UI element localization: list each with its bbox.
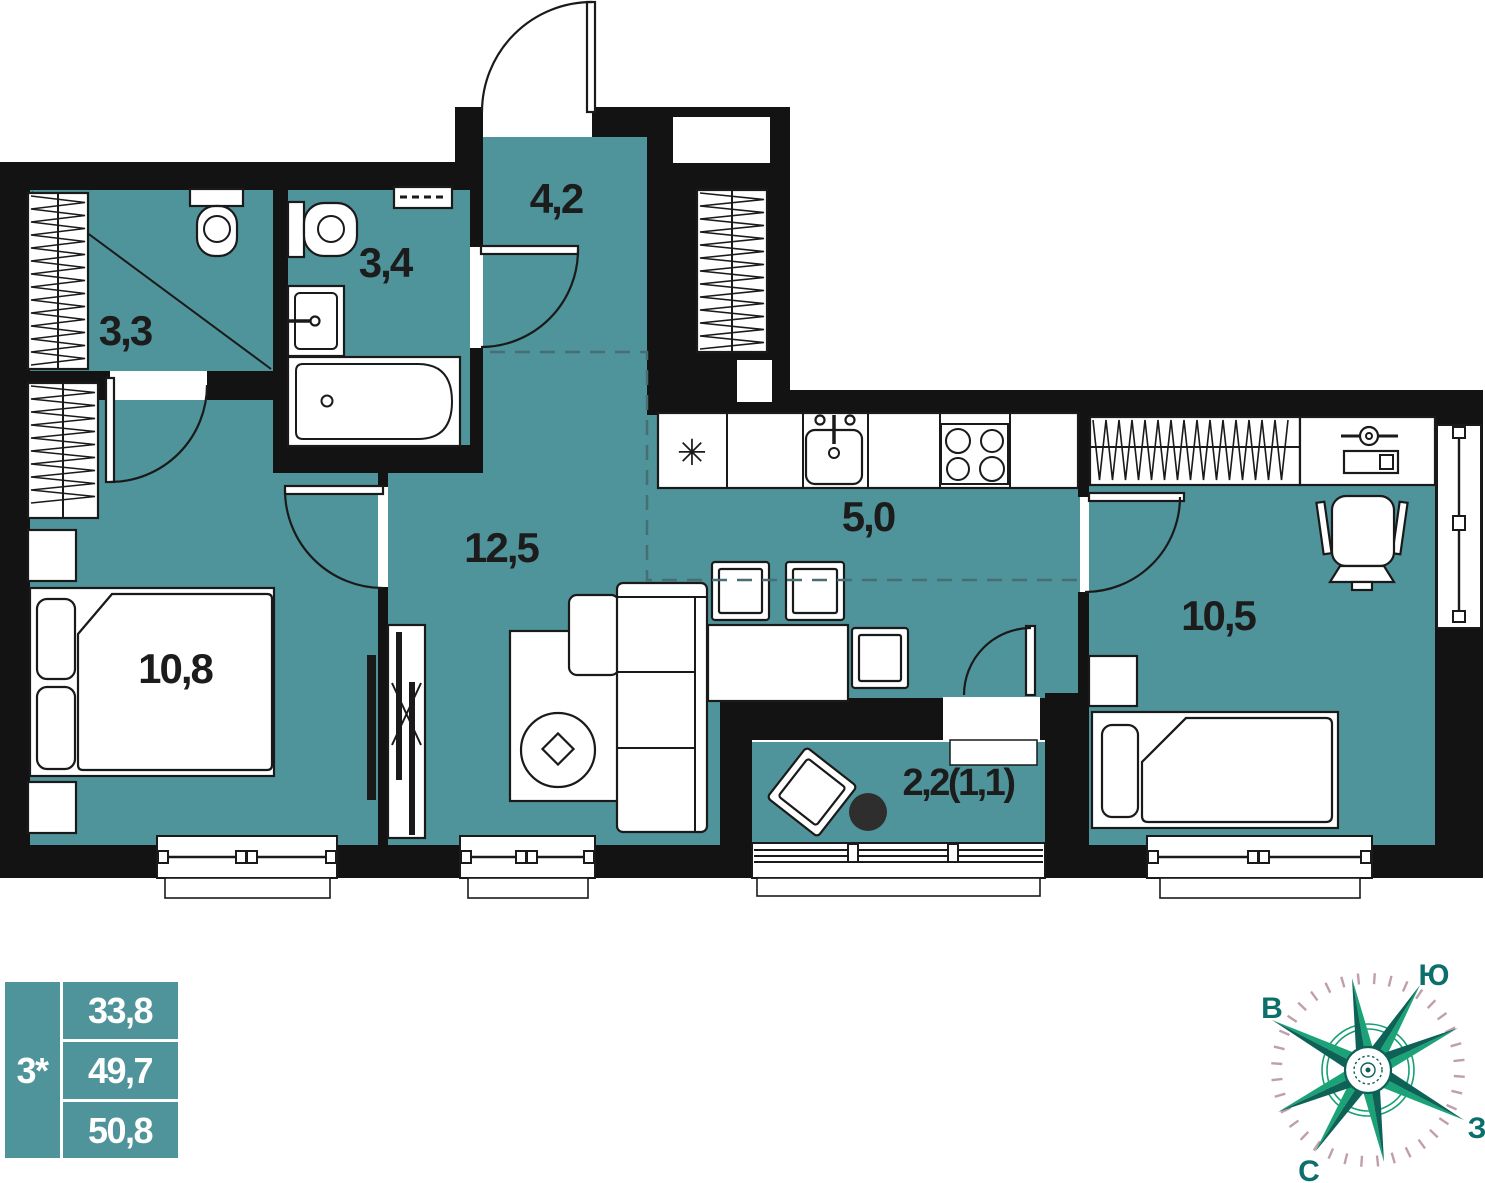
label-room-5-0: 5,0 xyxy=(842,493,895,540)
kitchen-counter: ✳ xyxy=(658,413,1078,488)
label-room-3-3: 3,3 xyxy=(99,307,152,354)
sink-bathroom xyxy=(288,286,344,356)
label-room-4-2: 4,2 xyxy=(530,175,583,222)
nightstand-2-room-10-8 xyxy=(28,782,76,833)
entry-niche xyxy=(673,117,770,163)
balcony-door-sill xyxy=(943,697,1040,740)
desk-room-10-5 xyxy=(1300,417,1435,485)
label-room-10-8: 10,8 xyxy=(138,645,213,692)
fridge-icon: ✳ xyxy=(677,432,707,473)
compass-label-east: В xyxy=(1261,992,1283,1025)
label-room-12-5: 12,5 xyxy=(464,524,539,571)
doorway-room-3-3 xyxy=(110,371,207,400)
towel-rail-icon xyxy=(394,187,452,208)
single-bed-room-10-5 xyxy=(1092,712,1338,828)
wardrobe-room-3-3 xyxy=(28,193,88,369)
legend-area-main: 49,7 xyxy=(88,1050,153,1091)
legend-box: 3* 33,8 49,7 50,8 xyxy=(5,982,178,1158)
wardrobe-hall xyxy=(697,190,767,352)
compass-center xyxy=(1345,1047,1391,1093)
tv-room-10-8 xyxy=(367,655,376,800)
toilet-room-3-3 xyxy=(190,189,243,256)
window-balcony-glazing xyxy=(752,843,1045,896)
compass-label-west: З xyxy=(1468,1112,1485,1145)
window-room-10-5 xyxy=(1147,836,1372,898)
label-room-10-5: 10,5 xyxy=(1181,592,1256,639)
duct-shaft xyxy=(737,360,772,402)
window-living xyxy=(460,836,595,898)
legend-area-total: 50,8 xyxy=(88,1110,153,1151)
doorway-bathroom xyxy=(470,247,483,348)
legend-type-label: 3* xyxy=(16,1050,49,1091)
wardrobe-room-10-5 xyxy=(1090,417,1300,485)
doorway-room-10-8 xyxy=(378,487,388,587)
compass-label-north: С xyxy=(1298,1155,1320,1183)
nightstand-1-room-10-8 xyxy=(28,530,76,581)
floorplan-page: ✳ xyxy=(0,0,1485,1183)
doorway-room-10-5 xyxy=(1080,497,1089,592)
sliding-wardrobe-living xyxy=(388,625,425,838)
floorplan-canvas: ✳ xyxy=(0,0,1485,1183)
toilet-bathroom xyxy=(288,202,357,257)
legend-area-living: 33,8 xyxy=(88,990,153,1031)
bathtub xyxy=(288,357,460,446)
dining-table xyxy=(708,625,848,701)
wardrobe-room-10-8 xyxy=(28,383,98,518)
label-balcony: 2,2(1,1) xyxy=(903,762,1015,804)
window-room-10-8 xyxy=(157,836,337,898)
nightstand-room-10-5 xyxy=(1089,656,1137,706)
compass-label-south: Ю xyxy=(1419,959,1450,992)
window-room-10-5-east xyxy=(1437,425,1481,628)
label-room-3-4: 3,4 xyxy=(359,239,414,286)
balcony-round-table xyxy=(849,793,887,831)
